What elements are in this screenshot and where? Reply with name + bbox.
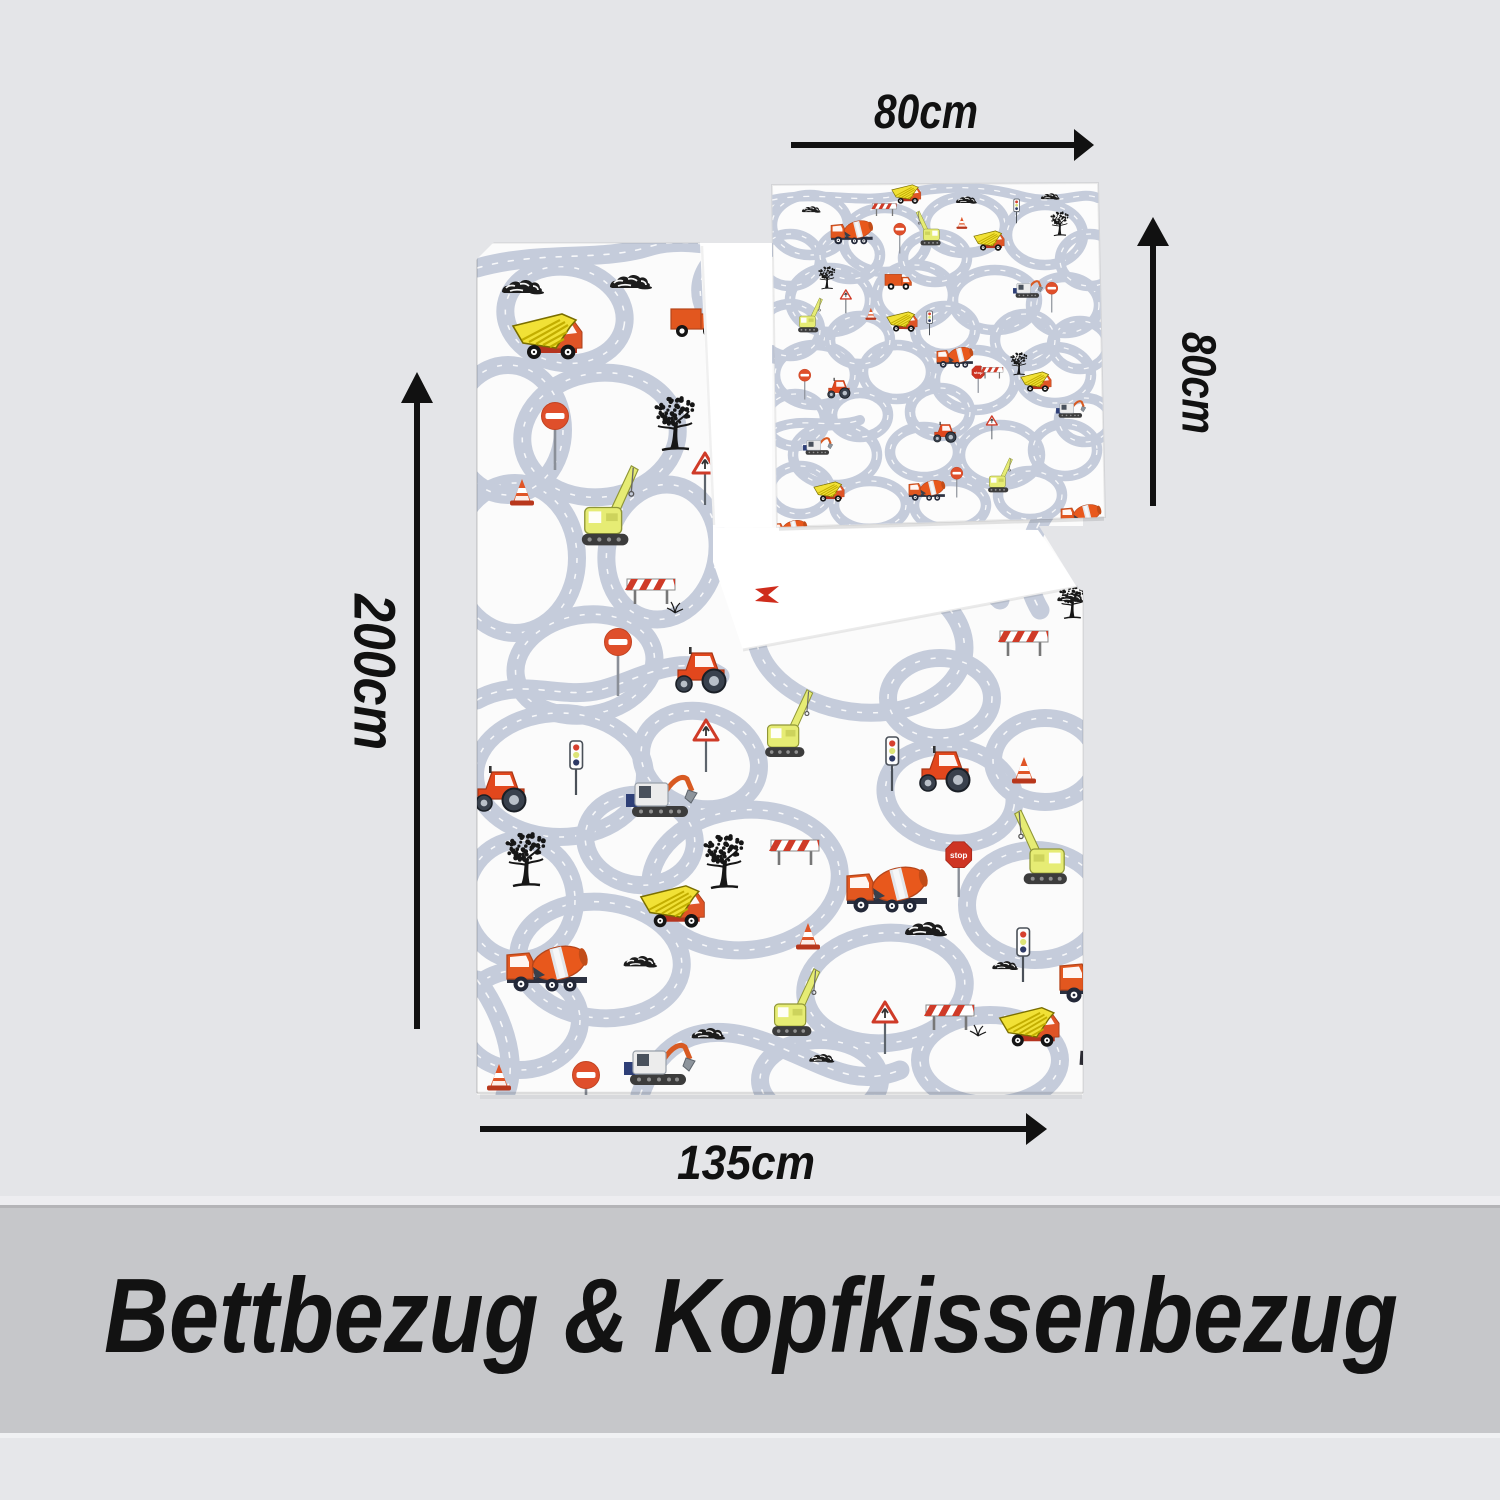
svg-text:80cm: 80cm <box>1172 332 1225 434</box>
svg-text:80cm: 80cm <box>874 86 978 139</box>
svg-text:200cm: 200cm <box>341 593 406 750</box>
svg-text:135cm: 135cm <box>677 1137 815 1190</box>
svg-text:Bettbezug & Kopfkissenbezug: Bettbezug & Kopfkissenbezug <box>104 1257 1398 1375</box>
